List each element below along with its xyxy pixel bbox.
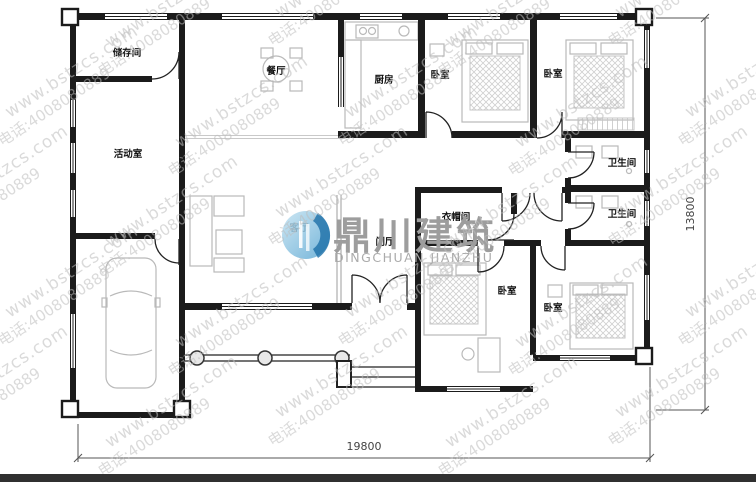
bed-north-middle: [430, 40, 528, 122]
window: [70, 190, 76, 217]
floor-plan-page: 19800 13800 储存间 餐厅 厨房 卧室 卧室 活动室 卫生间 卫生间 …: [0, 0, 756, 482]
window: [644, 201, 650, 226]
door-bathroom-1: [568, 152, 594, 178]
floor-plan-drawing: 19800 13800 储存间 餐厅 厨房 卧室 卧室 活动室 卫生间 卫生间 …: [0, 0, 756, 482]
logo-name-en: DINGCHUAN JIANZHU: [334, 250, 493, 265]
porch-column: [258, 351, 272, 365]
window: [644, 150, 650, 173]
window: [360, 13, 402, 20]
room-label-bedroom-north-mid: 卧室: [430, 69, 450, 81]
porch-post: [337, 361, 351, 387]
room-label-bedroom-north-east: 卧室: [543, 68, 563, 80]
room-label-bedroom-south-mid: 卧室: [497, 285, 517, 297]
room-label-bedroom-south-east: 卧室: [543, 302, 563, 314]
entry-door-left: [352, 275, 380, 303]
door-garage: [155, 239, 179, 265]
dimension-right: 13800: [656, 14, 709, 414]
window: [222, 13, 313, 20]
door-bedroom-north-middle: [426, 112, 452, 138]
window: [70, 143, 76, 173]
windows: [70, 13, 650, 392]
double-door-right: [534, 193, 562, 221]
window: [338, 57, 344, 107]
door-storage: [152, 52, 179, 79]
entry-steps: [351, 367, 415, 387]
logo: 鼎川建筑 DINGCHUAN JIANZHU: [282, 211, 497, 265]
window: [447, 386, 500, 392]
window: [222, 303, 312, 310]
door-bathroom-2: [568, 203, 594, 229]
entry-door-right: [380, 275, 407, 303]
room-label-bathroom-2: 卫生间: [608, 208, 637, 220]
window: [560, 355, 610, 361]
footer-bar: [0, 474, 756, 482]
window: [105, 13, 167, 20]
window: [70, 314, 76, 368]
bed-north-east: [566, 40, 634, 130]
porch-column: [190, 351, 204, 365]
window: [70, 100, 76, 127]
room-labels: 储存间 餐厅 厨房 卧室 卧室 活动室 卫生间 卫生间 客厅 衣帽间 门厅 卧室…: [113, 47, 637, 314]
door-bedroom-north-east: [537, 112, 562, 138]
dimension-width-label: 19800: [347, 440, 382, 453]
car: [102, 258, 160, 388]
room-label-activity: 活动室: [114, 148, 143, 160]
beam-line: [185, 136, 345, 139]
bed-south-middle: [424, 263, 500, 372]
porch: [183, 351, 415, 387]
window: [644, 30, 650, 68]
window: [448, 13, 500, 20]
door-bedroom-south-east: [541, 246, 565, 270]
bed-south-east: [548, 283, 633, 349]
room-label-kitchen: 厨房: [374, 74, 393, 86]
dimension-height-label: 13800: [684, 197, 697, 232]
room-label-bathroom-1: 卫生间: [608, 157, 637, 169]
sofa-set: [190, 196, 244, 272]
window: [644, 275, 650, 320]
room-label-dining: 餐厅: [265, 65, 286, 77]
window: [560, 13, 617, 20]
room-label-storage: 储存间: [113, 47, 142, 59]
